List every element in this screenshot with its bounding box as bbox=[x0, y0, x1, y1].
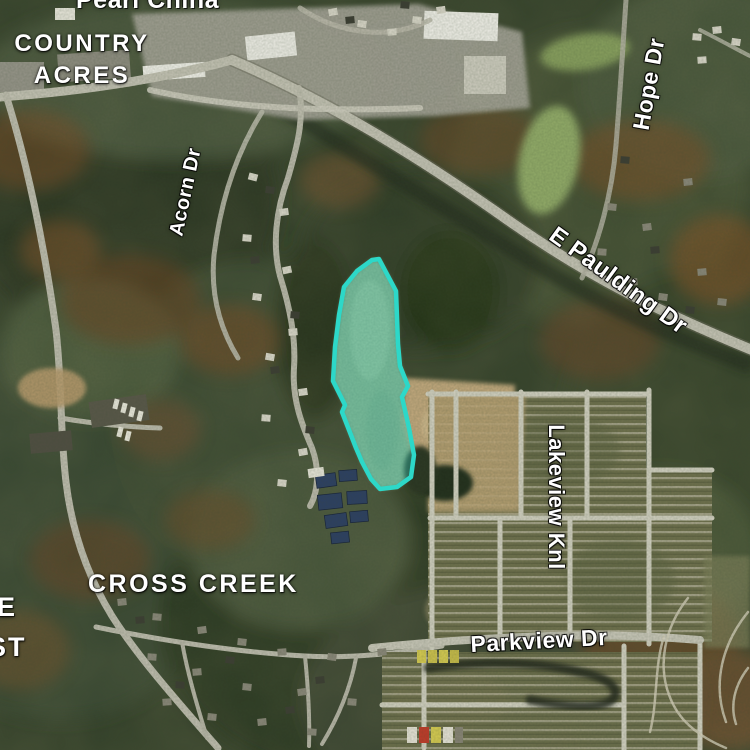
satellite-map[interactable]: Pearl China COUNTRY ACRES Acorn Dr Hope … bbox=[0, 0, 750, 750]
satellite-imagery bbox=[0, 0, 750, 750]
